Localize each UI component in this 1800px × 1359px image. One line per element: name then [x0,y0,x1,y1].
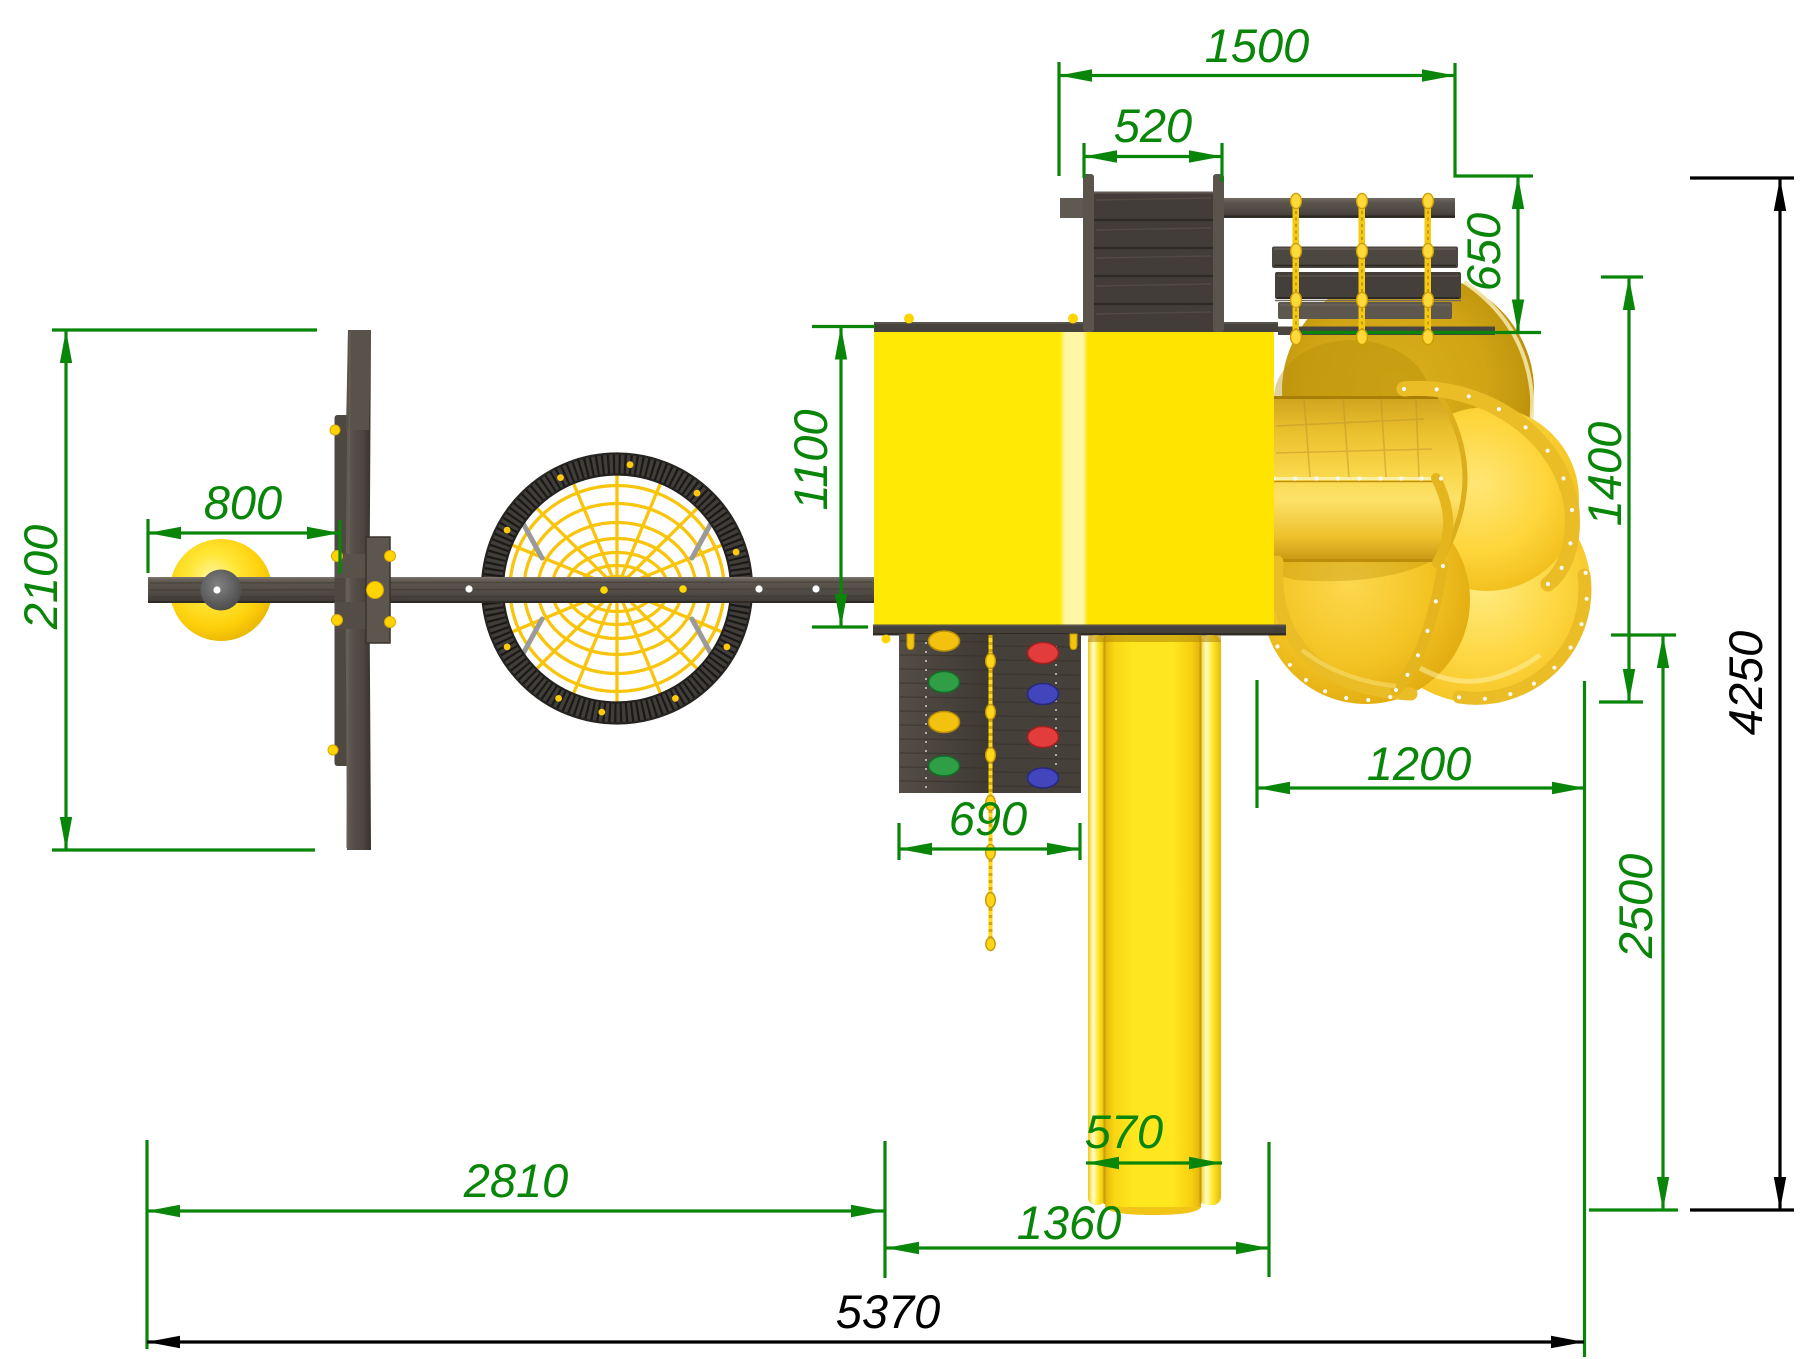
svg-text:5370: 5370 [836,1285,941,1338]
svg-text:4250: 4250 [1719,631,1772,736]
svg-text:690: 690 [949,792,1027,845]
svg-text:650: 650 [1457,213,1510,291]
svg-text:1360: 1360 [1017,1196,1122,1249]
svg-text:1500: 1500 [1205,19,1310,72]
svg-text:570: 570 [1085,1105,1163,1158]
svg-text:1200: 1200 [1367,737,1472,790]
svg-text:1100: 1100 [784,409,837,510]
svg-text:1400: 1400 [1578,422,1631,527]
svg-text:520: 520 [1114,99,1192,152]
svg-text:2500: 2500 [1609,854,1662,960]
svg-text:2100: 2100 [14,525,67,631]
svg-text:2810: 2810 [463,1154,569,1207]
svg-text:800: 800 [204,476,282,529]
